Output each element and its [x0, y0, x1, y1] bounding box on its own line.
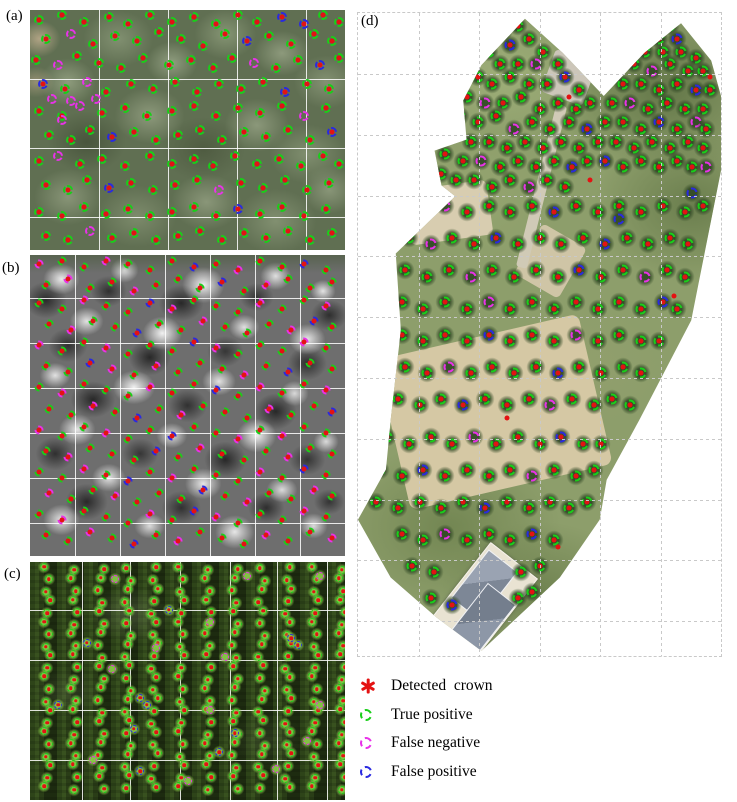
detection-dot-icon	[242, 231, 247, 236]
detection-dot-icon	[203, 687, 207, 691]
detection-dot-icon	[308, 137, 313, 142]
detection-dot-icon	[700, 107, 705, 112]
legend-item-true-positive: True positive	[357, 701, 493, 730]
grid-line	[30, 478, 345, 479]
detection-dot-icon	[103, 346, 108, 351]
detection-dot-icon	[205, 653, 209, 657]
detection-dot-icon	[283, 89, 288, 94]
detection-dot-icon	[566, 506, 571, 511]
detection-dot-icon	[312, 755, 316, 759]
detection-dot-icon	[59, 433, 64, 438]
detection-dot-icon	[490, 364, 495, 369]
detection-dot-icon	[220, 451, 225, 456]
detection-dot-icon	[555, 101, 560, 106]
detection-dot-icon	[74, 644, 78, 648]
detection-dot-icon	[664, 101, 669, 106]
detection-dot-icon	[124, 566, 128, 570]
detection-dot-icon	[72, 733, 76, 737]
detection-dot-icon	[439, 396, 444, 401]
detection-dot-icon	[595, 139, 600, 144]
detection-dot-icon	[399, 531, 404, 536]
grid-line	[75, 255, 76, 556]
detection-dot-icon	[72, 788, 76, 792]
detection-dot-icon	[205, 598, 209, 602]
detection-dot-icon	[264, 364, 269, 369]
detection-dot-icon	[103, 212, 108, 217]
detection-dot-icon	[213, 262, 218, 267]
detection-dot-icon	[147, 12, 152, 17]
detection-dot-icon	[46, 322, 51, 327]
detection-dot-icon	[131, 457, 136, 462]
detection-dot-icon	[102, 787, 106, 791]
detection-dot-icon	[302, 340, 307, 345]
detection-dot-icon	[245, 415, 250, 420]
detection-dot-icon	[109, 236, 114, 241]
legend-label: False positive	[384, 763, 477, 781]
detection-dot-icon	[686, 242, 691, 247]
detection-dot-icon	[127, 774, 131, 778]
detection-dot-icon	[231, 610, 235, 614]
detection-dot-icon	[302, 508, 307, 513]
detection-dot-icon	[194, 89, 199, 94]
detection-dot-icon	[181, 742, 185, 746]
detection-dot-icon	[71, 598, 75, 602]
detection-dot-icon	[682, 210, 687, 215]
detection-dot-icon	[217, 82, 222, 87]
detection-dot-icon	[339, 653, 343, 657]
detection-dot-icon	[316, 599, 320, 603]
fn-ring-icon	[53, 60, 63, 70]
detection-dot-icon	[128, 82, 133, 87]
detection-dot-icon	[490, 268, 495, 273]
detection-dot-icon	[235, 601, 239, 605]
detection-dot-icon	[233, 631, 237, 635]
detection-dot-icon	[183, 764, 187, 768]
detection-dot-icon	[109, 367, 114, 372]
detection-dot-icon	[154, 137, 159, 142]
detection-dot-icon	[91, 41, 96, 46]
detection-dot-icon	[493, 113, 498, 118]
detection-dot-icon	[223, 325, 228, 330]
detection-dot-icon	[530, 300, 535, 305]
fn-ring-icon	[469, 432, 480, 443]
grid-line	[358, 74, 721, 75]
detection-dot-icon	[125, 436, 130, 441]
detection-dot-icon	[132, 727, 136, 731]
detection-dot-icon	[183, 709, 187, 713]
detection-dot-icon	[213, 22, 218, 27]
detection-dot-icon	[311, 403, 316, 408]
detection-dot-icon	[245, 331, 250, 336]
detection-dot-icon	[700, 203, 705, 208]
detection-dot-icon	[428, 596, 433, 601]
detection-dot-icon	[69, 577, 73, 581]
detection-dot-icon	[124, 731, 128, 735]
detection-dot-icon	[57, 703, 61, 707]
detection-dot-icon	[263, 689, 267, 693]
detection-dot-icon	[109, 451, 114, 456]
detection-dot-icon	[81, 508, 86, 513]
detection-dot-icon	[308, 286, 313, 291]
fn-ring-icon	[91, 94, 101, 104]
figure-root: (a) (b) (c) (d) Detected crown True posi…	[0, 0, 737, 802]
grid-line	[358, 500, 721, 501]
detection-dot-icon	[664, 268, 669, 273]
detection-dot-icon	[316, 654, 320, 658]
detection-dot-icon	[461, 403, 466, 408]
detection-dot-icon	[103, 514, 108, 519]
detection-dot-icon	[399, 300, 404, 305]
detection-dot-icon	[154, 448, 159, 453]
detection-dot-icon	[310, 675, 314, 679]
detection-dot-icon	[223, 409, 228, 414]
detection-dot-icon	[312, 645, 316, 649]
detection-dot-icon	[59, 391, 64, 396]
detection-dot-icon	[179, 496, 184, 501]
detection-dot-icon	[512, 274, 517, 279]
detection-dot-icon	[176, 785, 180, 789]
detection-dot-icon	[327, 87, 332, 92]
detection-dot-icon	[62, 87, 67, 92]
detection-dot-icon	[113, 493, 118, 498]
detection-dot-icon	[310, 730, 314, 734]
detection-dot-icon	[150, 87, 155, 92]
detection-dot-icon	[424, 371, 429, 376]
detection-dot-icon	[541, 49, 546, 54]
detection-dot-icon	[76, 720, 80, 724]
detection-dot-icon	[178, 700, 182, 704]
detection-dot-icon	[233, 576, 237, 580]
detection-dot-icon	[135, 331, 140, 336]
detection-dot-icon	[209, 775, 213, 779]
detection-dot-icon	[42, 785, 46, 789]
fn-ring-icon	[303, 737, 311, 745]
detection-dot-icon	[302, 382, 307, 387]
detection-dot-icon	[43, 183, 48, 188]
detection-dot-icon	[91, 319, 96, 324]
detection-dot-icon	[191, 15, 196, 20]
fn-ring-icon	[440, 528, 451, 539]
detection-dot-icon	[154, 532, 159, 537]
detection-dot-icon	[340, 678, 344, 682]
detection-dot-icon	[47, 577, 51, 581]
detection-dot-icon	[257, 511, 262, 516]
detection-dot-icon	[486, 473, 491, 478]
detection-dot-icon	[191, 382, 196, 387]
fn-ring-icon	[316, 572, 324, 580]
fn-ring-icon	[523, 181, 534, 192]
detection-dot-icon	[280, 433, 285, 438]
detection-dot-icon	[176, 620, 180, 624]
detection-dot-icon	[296, 644, 300, 648]
detection-dot-icon	[443, 152, 448, 157]
detection-dot-icon	[84, 178, 89, 183]
detection-dot-icon	[76, 665, 80, 669]
detection-dot-icon	[432, 570, 437, 575]
detection-dot-icon	[261, 774, 265, 778]
detection-dot-icon	[74, 589, 78, 593]
detection-dot-icon	[290, 587, 294, 591]
detection-dot-icon	[339, 598, 343, 602]
true-positive-icon	[357, 709, 384, 721]
detection-dot-icon	[220, 137, 225, 142]
detection-dot-icon	[147, 511, 152, 516]
fn-ring-icon	[480, 98, 491, 109]
detection-dot-icon	[156, 587, 160, 591]
detection-dot-icon	[298, 164, 303, 169]
detection-dot-icon	[236, 677, 240, 681]
detection-dot-icon	[47, 632, 51, 636]
detection-dot-icon	[157, 29, 162, 34]
detection-dot-icon	[191, 265, 196, 270]
detection-dot-icon	[421, 538, 426, 543]
detection-dot-icon	[639, 371, 644, 376]
detection-dot-icon	[169, 259, 174, 264]
grid-line	[30, 523, 345, 524]
detection-dot-icon	[128, 180, 133, 185]
detection-dot-icon	[486, 531, 491, 536]
detection-dot-icon	[287, 654, 291, 658]
detection-dot-icon	[135, 415, 140, 420]
fn-ring-icon	[82, 77, 92, 87]
detection-dot-icon	[501, 101, 506, 106]
grid-line	[358, 560, 721, 561]
detection-dot-icon	[588, 178, 593, 183]
detection-dot-icon	[620, 165, 625, 170]
detection-dot-icon	[213, 430, 218, 435]
detection-dot-icon	[708, 75, 713, 80]
detection-dot-icon	[78, 161, 83, 166]
detection-dot-icon	[526, 506, 531, 511]
detection-dot-icon	[198, 128, 203, 133]
detection-dot-icon	[508, 43, 513, 48]
detection-dot-icon	[686, 68, 691, 73]
detection-dot-icon	[591, 467, 596, 472]
detection-dot-icon	[581, 441, 586, 446]
detection-dot-icon	[151, 578, 155, 582]
detection-dot-icon	[181, 577, 185, 581]
detection-dot-icon	[324, 514, 329, 519]
detection-dot-icon	[395, 396, 400, 401]
detection-dot-icon	[577, 146, 582, 151]
detection-dot-icon	[342, 644, 345, 648]
detection-dot-icon	[302, 466, 307, 471]
detection-dot-icon	[65, 454, 70, 459]
detection-dot-icon	[497, 165, 502, 170]
detection-dot-icon	[44, 700, 48, 704]
detection-dot-icon	[235, 268, 240, 273]
detection-dot-icon	[103, 89, 108, 94]
legend-item-false-negative: False negative	[357, 729, 493, 758]
detection-dot-icon	[288, 566, 292, 570]
detection-dot-icon	[504, 403, 509, 408]
detection-dot-icon	[286, 370, 291, 375]
detection-dot-icon	[504, 146, 509, 151]
detection-dot-icon	[302, 424, 307, 429]
detection-dot-icon	[37, 17, 42, 22]
detection-dot-icon	[59, 259, 64, 264]
detection-dot-icon	[682, 107, 687, 112]
detection-dot-icon	[106, 15, 111, 20]
detection-dot-icon	[639, 126, 644, 131]
detection-dot-icon	[125, 394, 130, 399]
detection-dot-icon	[483, 396, 488, 401]
detection-dot-icon	[620, 364, 625, 369]
circle-icon	[360, 766, 372, 778]
detection-dot-icon	[313, 721, 317, 725]
fn-ring-icon	[483, 297, 494, 308]
detection-dot-icon	[490, 81, 495, 86]
detection-dot-icon	[548, 126, 553, 131]
detection-dot-icon	[324, 430, 329, 435]
detection-dot-icon	[577, 88, 582, 93]
detection-dot-icon	[257, 385, 262, 390]
detection-dot-icon	[682, 274, 687, 279]
detection-dot-icon	[150, 667, 154, 671]
detection-dot-icon	[101, 711, 105, 715]
detection-dot-icon	[689, 165, 694, 170]
detection-dot-icon	[675, 36, 680, 41]
detection-dot-icon	[34, 58, 39, 63]
fn-ring-icon	[545, 400, 556, 411]
detected-crown-icon	[357, 678, 384, 694]
grid-line	[358, 317, 721, 318]
detection-dot-icon	[147, 268, 152, 273]
detection-dot-icon	[263, 744, 267, 748]
detection-dot-icon	[287, 764, 291, 768]
detection-dot-icon	[97, 60, 102, 65]
detection-dot-icon	[483, 506, 488, 511]
detection-dot-icon	[99, 576, 103, 580]
detection-dot-icon	[508, 178, 513, 183]
detection-dot-icon	[194, 178, 199, 183]
detection-dot-icon	[541, 146, 546, 151]
detection-dot-icon	[287, 599, 291, 603]
detection-dot-icon	[339, 763, 343, 767]
detection-dot-icon	[126, 588, 130, 592]
detection-dot-icon	[206, 733, 210, 737]
detection-dot-icon	[324, 268, 329, 273]
legend-label: False negative	[384, 734, 480, 752]
detection-dot-icon	[280, 349, 285, 354]
detection-dot-icon	[166, 63, 171, 68]
detection-dot-icon	[47, 687, 51, 691]
detection-dot-icon	[343, 610, 345, 614]
detection-dot-icon	[285, 578, 289, 582]
detection-dot-icon	[570, 396, 575, 401]
detection-dot-icon	[486, 203, 491, 208]
detection-dot-icon	[123, 710, 127, 714]
detection-dot-icon	[98, 665, 102, 669]
detection-dot-icon	[42, 675, 46, 679]
detection-dot-icon	[59, 349, 64, 354]
detection-dot-icon	[235, 106, 240, 111]
detection-dot-icon	[700, 68, 705, 73]
detection-dot-icon	[209, 665, 213, 669]
detection-dot-icon	[198, 445, 203, 450]
detection-dot-icon	[679, 49, 684, 54]
detection-dot-icon	[235, 310, 240, 315]
detection-dot-icon	[81, 20, 86, 25]
detection-dot-icon	[42, 730, 46, 734]
detection-dot-icon	[508, 467, 513, 472]
detection-dot-icon	[81, 424, 86, 429]
detection-dot-icon	[555, 544, 560, 549]
detection-dot-icon	[443, 473, 448, 478]
fn-ring-icon	[206, 706, 214, 714]
grid-line	[30, 388, 345, 389]
detection-dot-icon	[276, 156, 281, 161]
detection-dot-icon	[302, 214, 307, 219]
detection-dot-icon	[330, 535, 335, 540]
detection-dot-icon	[315, 632, 319, 636]
detection-dot-icon	[129, 634, 133, 638]
detection-dot-icon	[156, 697, 160, 701]
detection-dot-icon	[620, 268, 625, 273]
detection-dot-icon	[289, 328, 294, 333]
detection-dot-icon	[37, 469, 42, 474]
detection-dot-icon	[308, 361, 313, 366]
detection-dot-icon	[220, 280, 225, 285]
detection-dot-icon	[131, 231, 136, 236]
detection-dot-icon	[81, 265, 86, 270]
detection-dot-icon	[96, 643, 100, 647]
detection-dot-icon	[595, 338, 600, 343]
detection-dot-icon	[257, 710, 261, 714]
detection-dot-icon	[257, 765, 261, 769]
detection-dot-icon	[181, 632, 185, 636]
detection-dot-icon	[316, 764, 320, 768]
detection-dot-icon	[342, 699, 345, 703]
detection-dot-icon	[493, 236, 498, 241]
panel-d-label: (d)	[361, 13, 379, 30]
fn-ring-icon	[53, 151, 63, 161]
detection-dot-icon	[208, 589, 212, 593]
detection-dot-icon	[154, 283, 159, 288]
fn-ring-icon	[465, 271, 476, 282]
detection-dot-icon	[37, 159, 42, 164]
detection-dot-icon	[675, 158, 680, 163]
detection-dot-icon	[139, 770, 143, 774]
detection-dot-icon	[620, 81, 625, 86]
panel-c-label: (c)	[4, 566, 21, 583]
detection-dot-icon	[151, 633, 155, 637]
detection-dot-icon	[176, 370, 181, 375]
detection-dot-icon	[123, 655, 127, 659]
detection-dot-icon	[59, 12, 64, 17]
detection-dot-icon	[242, 289, 247, 294]
detection-dot-icon	[286, 277, 291, 282]
detection-dot-icon	[208, 644, 212, 648]
detection-dot-icon	[424, 274, 429, 279]
detection-dot-icon	[223, 32, 228, 37]
detection-dot-icon	[559, 242, 564, 247]
detection-dot-icon	[302, 298, 307, 303]
detection-dot-icon	[176, 132, 181, 137]
detection-dot-icon	[81, 466, 86, 471]
fn-ring-icon	[509, 123, 520, 134]
detection-dot-icon	[96, 588, 100, 592]
fn-ring-icon	[701, 162, 712, 173]
detection-dot-icon	[201, 487, 206, 492]
detection-dot-icon	[512, 371, 517, 376]
detection-dot-icon	[102, 677, 106, 681]
detection-dot-icon	[330, 130, 335, 135]
detection-dot-icon	[153, 709, 157, 713]
detection-dot-icon	[508, 538, 513, 543]
detection-dot-icon	[421, 467, 426, 472]
detection-dot-icon	[65, 238, 70, 243]
